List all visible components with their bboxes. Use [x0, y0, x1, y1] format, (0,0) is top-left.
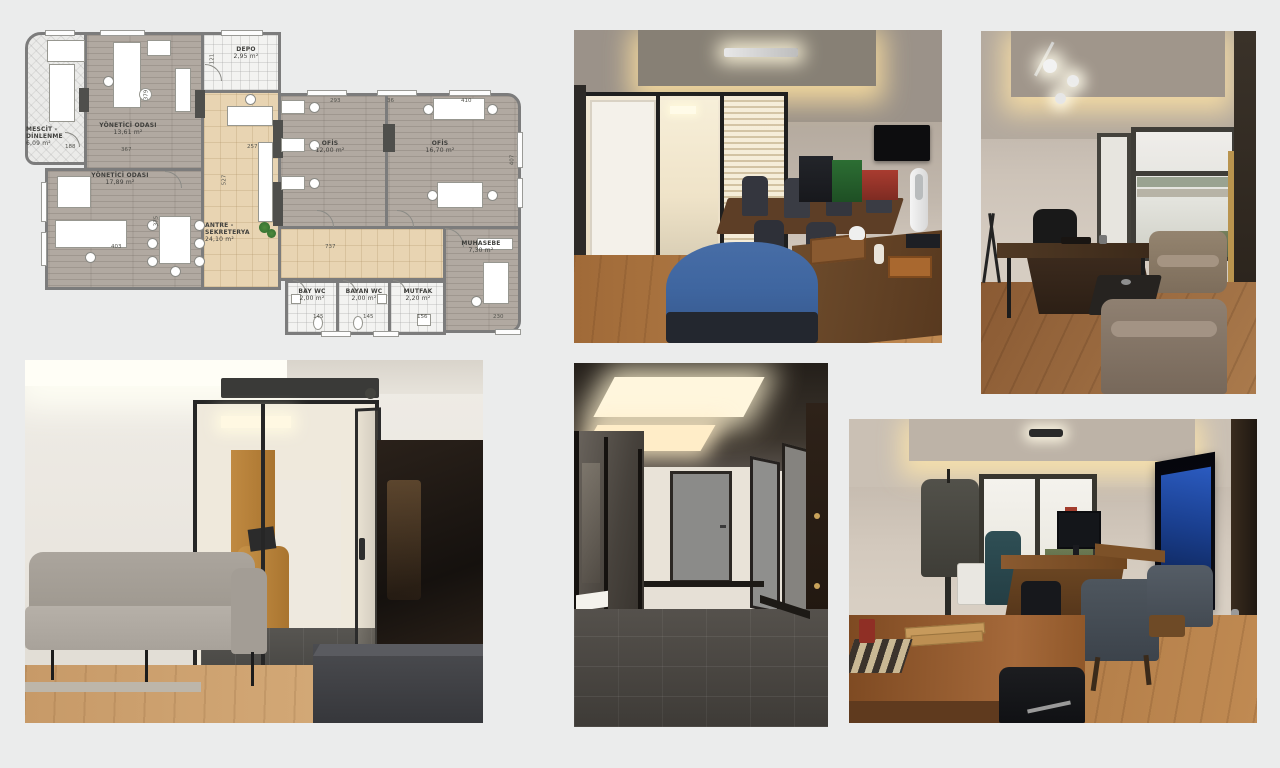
room-name: OFİS [407, 140, 473, 147]
corridor-glimpse [660, 100, 718, 262]
furniture-chair [471, 296, 482, 307]
furniture-desk [433, 98, 485, 120]
meeting-chair [742, 176, 768, 216]
light-spot [1043, 59, 1057, 73]
gray-door [750, 456, 780, 614]
window [377, 90, 417, 96]
room-label-mutfak: MUTFAK 2,20 m² [393, 288, 443, 302]
room-area: 16,70 m² [407, 147, 473, 154]
guest-armchair-foreground [1101, 299, 1227, 394]
blue-armchair-base [666, 312, 818, 343]
security-camera [365, 388, 376, 399]
dim-label: 375 [153, 216, 159, 227]
window [221, 30, 263, 36]
brass-hinge [814, 583, 820, 589]
window [100, 30, 145, 36]
window [41, 182, 47, 222]
room-name: MESCİT - DİNLENME [26, 126, 82, 140]
room-label-ofis-1: OFİS 12,00 m² [297, 140, 363, 154]
room-label-yonetici-2: YÖNETİCİ ODASI 17,89 m² [87, 172, 153, 186]
room-name: ANTRE - SEKRETERYA [205, 222, 271, 236]
window [495, 329, 521, 335]
photo-office-tv [849, 419, 1257, 723]
tile-floor [574, 609, 828, 727]
room-area: 2,00 m² [289, 295, 335, 302]
box-stack [799, 156, 833, 202]
room-name: BAY WC [289, 288, 335, 295]
room-name: MUTFAK [393, 288, 443, 295]
window [321, 331, 351, 337]
furniture-chair [423, 104, 434, 115]
furniture-cabinet [258, 142, 273, 222]
chessboard [849, 639, 913, 673]
ceiling-recess [909, 419, 1195, 461]
door-handle [359, 538, 365, 560]
room-area: 17,89 m² [87, 179, 153, 186]
dim-label: 403 [111, 244, 122, 250]
dim-label: 230 [493, 314, 504, 320]
gray-sofa-seat [25, 606, 265, 650]
photo-corridor [574, 363, 828, 727]
brass-hinge [814, 513, 820, 519]
dim-label: 257 [247, 144, 258, 150]
glass-reflection [582, 463, 600, 583]
furniture-chair [194, 238, 205, 249]
furniture-chair [487, 190, 498, 201]
dim-label: 737 [325, 244, 336, 250]
dim-label: 367 [121, 147, 132, 153]
gray-sofa-back [29, 552, 255, 614]
room-label-depo: DEPO 2,95 m² [221, 46, 271, 60]
window [517, 178, 523, 208]
white-door [590, 100, 656, 264]
window-view-highway [1137, 177, 1231, 187]
dim-label: 379 [143, 90, 149, 101]
radiator [957, 563, 987, 605]
photo-executive-office [981, 31, 1256, 394]
room-name: YÖNETİCİ ODASI [87, 172, 153, 179]
furniture-chair [194, 256, 205, 267]
desk-accessory [1099, 235, 1107, 244]
window [517, 132, 523, 168]
furniture-meeting-table [159, 216, 191, 264]
room-area: 2,95 m² [221, 53, 271, 60]
ceiling-light-panel [593, 377, 764, 417]
transom-vent [221, 378, 379, 398]
furniture-desk [281, 100, 305, 114]
furniture-desk [437, 182, 483, 208]
room-name: BAYAN WC [339, 288, 389, 295]
tape-roll [849, 226, 865, 240]
room-name: YÖNETİCİ ODASI [95, 122, 161, 129]
armchair-bolster [1111, 321, 1217, 337]
box-green [832, 160, 862, 202]
dim-label: 36 [387, 98, 394, 104]
room-label-muhasebe: MUHASEBE 7,30 m² [449, 240, 513, 254]
furniture-cabinet [147, 40, 171, 56]
furniture-bed [47, 40, 85, 62]
monitor-stand [1073, 545, 1079, 555]
sideboard-top [313, 644, 483, 656]
baseboard [25, 682, 201, 692]
spot-light-fixture [1029, 429, 1063, 437]
room-label-antre: ANTRE - SEKRETERYA 24,10 m² [205, 222, 271, 243]
furniture-desk [113, 42, 141, 108]
furniture-chair [85, 252, 96, 263]
window-mullion [1136, 171, 1232, 176]
dim-label: 527 [221, 175, 227, 186]
desk-top [997, 243, 1149, 258]
room-name: OFİS [297, 140, 363, 147]
wall-tv [874, 125, 930, 161]
room-antre-corridor [278, 226, 446, 281]
window [307, 90, 347, 96]
window [449, 90, 491, 96]
window [373, 331, 399, 337]
wall-jamb [383, 124, 395, 152]
hourglass [874, 244, 884, 264]
dim-label: 121 [209, 54, 215, 65]
furniture-chair [194, 220, 205, 231]
furniture-chair [309, 178, 320, 189]
window [41, 232, 47, 266]
furniture-sofa [49, 64, 75, 122]
room-label-yonetici-1: YÖNETİCİ ODASI 13,61 m² [95, 122, 161, 136]
furniture-chair [487, 104, 498, 115]
table-item-red [859, 619, 875, 643]
furniture-chair [103, 76, 114, 87]
glass-reflection [387, 480, 421, 600]
room-area: 7,30 m² [449, 247, 513, 254]
photo-lounge-reception [25, 360, 483, 723]
furniture-desk [483, 262, 509, 304]
dim-label: 407 [509, 155, 515, 166]
room-area: 2,00 m² [339, 295, 389, 302]
room-name: DEPO [221, 46, 271, 53]
room-label-bayan-wc: BAYAN WC 2,00 m² [339, 288, 389, 302]
furniture-toilet [353, 316, 363, 330]
dim-label: 145 [313, 314, 324, 320]
corridor-light [670, 106, 696, 114]
furniture-chair [170, 266, 181, 277]
photo-meeting-room [574, 30, 942, 343]
wall-jamb [195, 90, 205, 118]
dim-label: 410 [461, 98, 472, 104]
room-label-bay-wc: BAY WC 2,00 m² [289, 288, 335, 302]
room-name: MUHASEBE [449, 240, 513, 247]
dim-label: 156 [417, 314, 428, 320]
furniture-chair [147, 256, 158, 267]
furniture-cabinet [57, 176, 91, 208]
black-chair-foreground [999, 667, 1085, 723]
furniture-chair [147, 238, 158, 249]
dim-label: 188 [65, 144, 76, 150]
coat-rack-hook [947, 469, 950, 483]
furniture-chair [245, 94, 256, 105]
floor-plan: MESCİT - DİNLENME 6,09 m² YÖNETİCİ ODASI… [25, 32, 522, 335]
dim-label: 145 [363, 314, 374, 320]
wooden-desk-top [1001, 555, 1127, 569]
light-spot [1067, 75, 1079, 87]
furniture-chair [427, 190, 438, 201]
box-red [862, 170, 898, 200]
desk-book [906, 234, 940, 248]
sofa-leg [145, 650, 148, 682]
room-label-ofis-2: OFİS 16,70 m² [407, 140, 473, 154]
furniture-sofa [175, 68, 191, 112]
side-table [1149, 615, 1185, 637]
furniture-chair [309, 102, 320, 113]
sofa-leg [251, 652, 254, 686]
desk-box [888, 256, 932, 278]
window [45, 30, 75, 36]
furniture-desk [281, 176, 305, 190]
skirting [644, 581, 764, 587]
room-area: 12,00 m² [297, 147, 363, 154]
room-area: 24,10 m² [205, 236, 271, 243]
room-area: 2,20 m² [393, 295, 443, 302]
armchair-bolster [1157, 255, 1219, 267]
ceiling-recess [638, 30, 876, 86]
dim-label: 293 [330, 98, 341, 104]
gray-sofa-arm [231, 568, 267, 654]
desk-leg [1007, 258, 1011, 318]
furniture-reception-desk [227, 106, 273, 126]
sofa-leg [51, 650, 54, 680]
ashtray [1121, 279, 1131, 285]
wall-jamb [79, 88, 89, 112]
door-handle [720, 525, 726, 528]
inner-ceiling-light [221, 416, 291, 428]
ceiling-light-fixture [724, 48, 798, 57]
desk-pad [1061, 237, 1091, 244]
light-spot [1055, 93, 1066, 104]
collage-page: { "page": {"background": "#ebecec"}, "fl… [0, 0, 1280, 768]
window-view-road [1137, 189, 1231, 197]
air-purifier-ring [915, 174, 923, 200]
room-area: 13,61 m² [95, 129, 161, 136]
